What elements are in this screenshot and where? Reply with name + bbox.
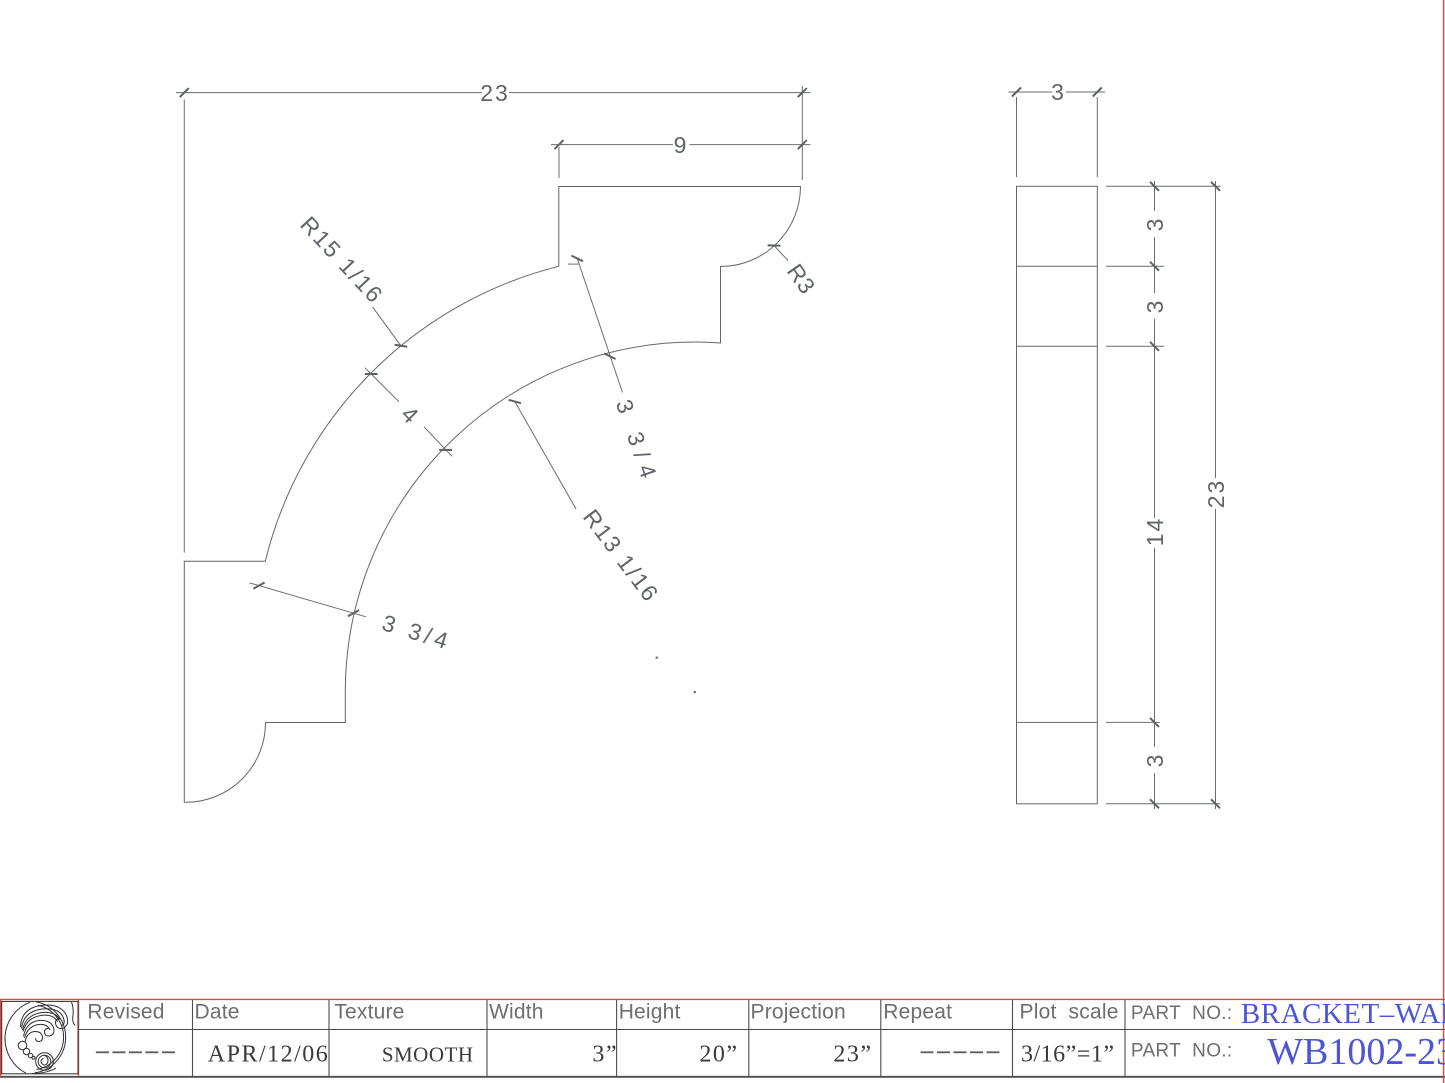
svg-text:3”: 3” [592,1042,618,1068]
svg-text:3: 3 [1142,753,1168,768]
svg-text:Projection: Projection [751,1001,846,1024]
svg-text:Revised: Revised [87,1001,164,1024]
svg-text:20”: 20” [699,1042,738,1068]
svg-text:23: 23 [480,80,510,106]
svg-text:3/16”=1”: 3/16”=1” [1021,1042,1115,1068]
svg-text:23: 23 [1203,479,1229,509]
svg-text:9: 9 [674,132,689,158]
svg-text:14: 14 [1142,517,1168,547]
svg-text:Width: Width [489,1001,544,1024]
svg-text:WB1002-23: WB1002-23 [1267,1031,1445,1073]
svg-text:BRACKET–WAL: BRACKET–WAL [1241,998,1445,1030]
svg-text:SMOOTH: SMOOTH [382,1043,474,1067]
svg-text:APR/12/06: APR/12/06 [208,1042,330,1068]
svg-text:3: 3 [1142,217,1168,232]
svg-text:Repeat: Repeat [883,1001,952,1024]
svg-text:Date: Date [195,1001,240,1024]
svg-text:Plot scale: Plot scale [1020,1001,1119,1024]
svg-text:Texture: Texture [334,1001,404,1024]
svg-text:Height: Height [619,1001,681,1024]
svg-text:PART NO.:: PART NO.: [1131,1040,1233,1061]
svg-text:3: 3 [1051,79,1066,105]
svg-text:3: 3 [1142,299,1168,314]
svg-text:PART NO.:: PART NO.: [1131,1003,1233,1024]
svg-text:23”: 23” [833,1042,872,1068]
